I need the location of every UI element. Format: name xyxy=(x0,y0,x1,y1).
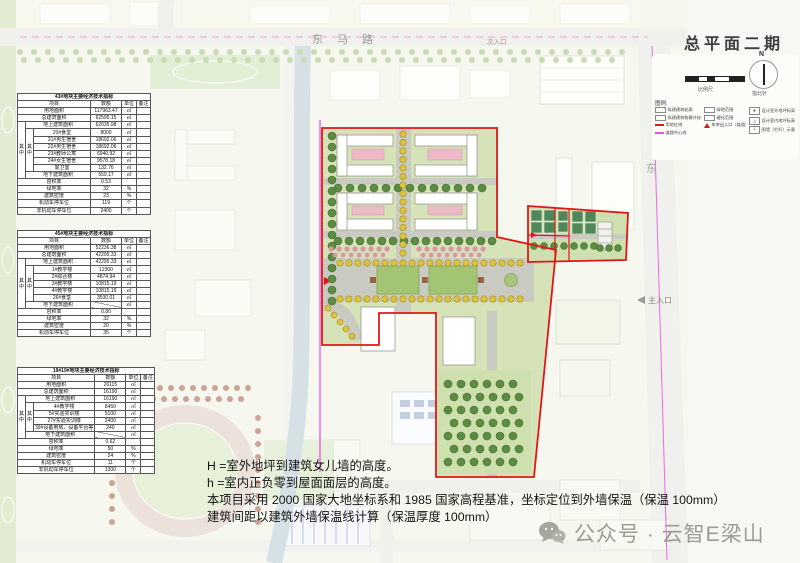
table-cell xyxy=(137,266,151,273)
sheet-title: 总平面二期 xyxy=(684,30,784,54)
watermark: 公众号 · 云智E梁山 xyxy=(538,518,765,548)
table-cell: ㎡ xyxy=(122,252,137,259)
table-cell: 8450 xyxy=(95,403,126,410)
table-cell xyxy=(137,323,151,330)
legend-list: 拟建建筑轮廓拟建建筑物最外轮廓用地红线道路中心线绿地范围硬化范围车库出入口（坡道… xyxy=(655,107,800,136)
indicator-table-19: 19#19#地块主要经济技术指标项目数额单位备注用地面积26115㎡总建筑面积1… xyxy=(17,367,155,474)
table-cell: 20#食堂 xyxy=(34,129,91,136)
table-cell: 43#地块主要经济技术指标 xyxy=(18,94,151,101)
table-cell: 个 xyxy=(126,460,141,467)
table-cell: 绿地率 xyxy=(18,446,95,453)
table-cell: 10815.19 xyxy=(91,280,122,287)
table-cell: 用地面积 xyxy=(18,245,91,252)
table-cell: 27#实验实训楼 xyxy=(34,417,95,424)
mark-swatch-icon: ┴ xyxy=(749,126,760,134)
table-cell: ㎡ xyxy=(122,273,137,280)
parcel-courts xyxy=(528,206,628,262)
table-cell: 其中 xyxy=(18,259,26,309)
table-cell: 2400 xyxy=(95,417,126,424)
table-cell: 23#教师公寓 xyxy=(34,150,91,157)
road-right-label: 东 xyxy=(646,160,657,176)
table-cell: 地上建筑面积 xyxy=(26,259,91,266)
table-cell: 16190 xyxy=(95,396,126,403)
table-cell: 26#食堂 xyxy=(34,294,91,301)
table-cell: ㎡ xyxy=(122,143,137,150)
table-cell: 42295.33 xyxy=(91,259,122,266)
table-cell: ㎡ xyxy=(122,157,137,164)
table-cell: 62595.15 xyxy=(91,115,122,122)
table-cell: % xyxy=(122,316,137,323)
scale-caption: 比例尺 xyxy=(698,86,713,93)
table-cell: 52236.38 xyxy=(91,245,122,252)
table-cell xyxy=(137,245,151,252)
table-cell: 24#女生宿舍 xyxy=(34,157,91,164)
table-cell: 42295.33 xyxy=(91,252,122,259)
table-cell: ㎡ xyxy=(122,108,137,115)
table-cell: 建筑密度 xyxy=(18,453,95,460)
table-cell xyxy=(137,330,151,337)
watermark-text: 公众号 · 云智E梁山 xyxy=(574,518,765,548)
table-cell: % xyxy=(126,446,141,453)
table-cell: 10815.19 xyxy=(91,287,122,294)
mark-swatch-icon: ▼ xyxy=(749,107,760,115)
table-cell: 1#教学楼 xyxy=(34,266,91,273)
table-cell xyxy=(137,136,151,143)
table-cell: 32 xyxy=(91,316,122,323)
table-cell xyxy=(141,396,155,403)
table-cell: 警卫室 xyxy=(34,164,91,171)
table-cell: ㎡ xyxy=(122,245,137,252)
table-cell: ㎡ xyxy=(122,287,137,294)
table-cell: ㎡ xyxy=(126,403,141,410)
table-cell: 单位 xyxy=(122,238,137,245)
indicator-table-43: 43#地块主要经济技术指标项目数额单位备注用地面积117963.47㎡总建筑面积… xyxy=(17,93,151,215)
table-cell: 其中 xyxy=(26,403,34,431)
legend-item: 拟建建筑物最外轮廓 xyxy=(655,115,701,121)
table-cell: ㎡ xyxy=(122,122,137,129)
table-cell: 117963.47 xyxy=(91,108,122,115)
table-cell: 用地面积 xyxy=(18,108,91,115)
table-cell: 39#设备用房、设备平台等 xyxy=(34,424,95,431)
table-cell: 备注 xyxy=(141,375,155,382)
table-cell: 个 xyxy=(122,207,137,214)
table-cell xyxy=(137,193,151,200)
table-cell: 132.76 xyxy=(91,164,122,171)
table-cell: 个 xyxy=(126,467,141,474)
table-cell: 119 xyxy=(91,200,122,207)
legend-item: 道路中心线 xyxy=(655,130,701,136)
table-cell xyxy=(141,424,155,431)
table-cell: ㎡ xyxy=(122,129,137,136)
table-cell: ㎡ xyxy=(122,164,137,171)
table-cell: 35 xyxy=(91,330,122,337)
legend-item: △设计室内地坪标高 xyxy=(749,117,800,125)
legend-label: 图例: xyxy=(655,99,668,107)
table-cell: ㎡ xyxy=(126,396,141,403)
table-cell xyxy=(91,301,122,308)
tri-swatch-icon xyxy=(704,123,710,128)
compass-north-letter: N xyxy=(759,51,764,58)
table-cell xyxy=(137,179,151,186)
table-cell: 2#综合楼 xyxy=(34,273,91,280)
table-cell: % xyxy=(122,323,137,330)
table-cell xyxy=(141,410,155,417)
table-cell: 地下建筑面积 xyxy=(26,431,95,438)
table-cell: 容积率 xyxy=(18,179,91,186)
table-cell: 559.17 xyxy=(91,172,122,179)
note-line: h =室内正负零到屋面面层的高度。 xyxy=(207,475,799,492)
table-cell: 机动车停车位 xyxy=(18,330,91,337)
table-cell: 绿地率 xyxy=(18,316,91,323)
table-cell xyxy=(137,259,151,266)
table-cell xyxy=(137,287,151,294)
table-cell: 4874.94 xyxy=(91,273,122,280)
table-cell: 5#实验实训楼 xyxy=(34,410,95,417)
table-cell: 地下建筑面积 xyxy=(26,301,91,308)
table-cell: 0.80 xyxy=(91,309,122,316)
table-cell: 18692.06 xyxy=(91,136,122,143)
table-cell: 项目 xyxy=(18,238,91,245)
table-cell: 项目 xyxy=(18,375,95,382)
table-cell: 4#教学楼 xyxy=(34,403,95,410)
table-cell: 单位 xyxy=(126,375,141,382)
table-cell: 240 xyxy=(95,424,126,431)
table-cell: % xyxy=(126,453,141,460)
table-cell xyxy=(137,115,151,122)
table-cell: 19#19#地块主要经济技术指标 xyxy=(18,368,155,375)
table-cell: 3#教学楼 xyxy=(34,280,91,287)
table-cell: % xyxy=(122,186,137,193)
table-cell xyxy=(137,172,151,179)
table-cell xyxy=(137,108,151,115)
table-cell: 数额 xyxy=(91,238,122,245)
table-cell xyxy=(141,403,155,410)
box-swatch-icon xyxy=(655,115,666,121)
north-compass-icon xyxy=(749,60,778,89)
table-cell xyxy=(137,294,151,301)
table-cell xyxy=(137,280,151,287)
table-cell: 绿地率 xyxy=(18,186,91,193)
legend-item: ┴围墙（栏杆）示意 xyxy=(749,126,800,134)
table-cell: 用地面积 xyxy=(18,382,95,389)
table-cell: 总建筑面积 xyxy=(18,252,91,259)
table-cell: ㎡ xyxy=(122,136,137,143)
table-cell: 其中 xyxy=(18,122,26,179)
table-cell: 0.62 xyxy=(95,438,126,445)
table-cell: ㎡ xyxy=(122,301,137,308)
line-magenta-swatch-icon xyxy=(655,132,664,134)
table-cell: 项目 xyxy=(18,101,91,108)
table-cell: 容积率 xyxy=(18,438,95,445)
legend-item: ▼设计室外地坪标高 xyxy=(749,107,800,115)
table-cell: 6940.92 xyxy=(91,150,122,157)
note-line: H =室外地坪到建筑女儿墙的高度。 xyxy=(207,458,799,475)
table-cell: 地上建筑面积 xyxy=(26,122,91,129)
table-cell: 3530.01 xyxy=(91,294,122,301)
table-cell: 总建筑面积 xyxy=(18,389,95,396)
table-cell xyxy=(122,309,137,316)
table-cell xyxy=(137,207,151,214)
table-cell: 建筑密度 xyxy=(18,193,91,200)
table-cell xyxy=(137,186,151,193)
table-cell: ㎡ xyxy=(122,294,137,301)
table-cell xyxy=(95,431,126,438)
table-cell: % xyxy=(122,193,137,200)
mark-swatch-icon: △ xyxy=(749,117,760,125)
table-cell: 11 xyxy=(95,460,126,467)
note-line: 本项目采用 2000 国家大地坐标系和 1985 国家高程基准，坐标定位到外墙保… xyxy=(207,492,799,509)
table-cell: 1300 xyxy=(95,467,126,474)
table-cell: 24 xyxy=(95,453,126,460)
table-cell xyxy=(137,316,151,323)
table-cell: ㎡ xyxy=(126,410,141,417)
table-cell: 其中 xyxy=(26,129,34,172)
table-cell: 4#教学楼 xyxy=(34,287,91,294)
table-cell: ㎡ xyxy=(126,417,141,424)
table-cell: 地上建筑面积 xyxy=(26,396,95,403)
table-cell: 数额 xyxy=(95,375,126,382)
table-cell: 其中 xyxy=(18,396,26,439)
table-cell xyxy=(137,273,151,280)
table-cell: 其中 xyxy=(26,266,34,301)
indicator-table-45: 45#地块主要经济技术指标项目数额单位备注用地面积52236.38㎡总建筑面积4… xyxy=(17,230,151,337)
table-cell xyxy=(137,252,151,259)
legend-item: 硬化范围 xyxy=(704,115,746,121)
table-cell: 机动车停车位 xyxy=(18,460,95,467)
table-cell: 45#地块主要经济技术指标 xyxy=(18,231,151,238)
table-cell: 数额 xyxy=(91,101,122,108)
box-swatch-icon xyxy=(704,115,715,121)
table-cell xyxy=(137,157,151,164)
table-cell: 非机动车停车位 xyxy=(18,467,95,474)
table-cell: 个 xyxy=(122,330,137,337)
table-cell: 机动车停车位 xyxy=(18,200,91,207)
table-cell: ㎡ xyxy=(122,266,137,273)
table-cell: 地下建筑面积 xyxy=(26,172,91,179)
table-cell: 容积率 xyxy=(18,309,91,316)
table-cell xyxy=(137,164,151,171)
table-cell xyxy=(141,446,155,453)
table-cell: ㎡ xyxy=(122,150,137,157)
table-cell: ㎡ xyxy=(126,431,141,438)
table-cell xyxy=(141,431,155,438)
table-cell xyxy=(122,179,137,186)
table-cell xyxy=(137,150,151,157)
table-cell xyxy=(141,453,155,460)
basketball-courts xyxy=(531,210,596,234)
scale-bar xyxy=(685,76,745,82)
table-cell: 20 xyxy=(91,323,122,330)
table-cell: 2400 xyxy=(91,207,122,214)
table-cell: 备注 xyxy=(137,101,151,108)
table-cell: 0.53 xyxy=(91,179,122,186)
wechat-icon xyxy=(538,521,566,545)
table-cell: ㎡ xyxy=(122,280,137,287)
table-cell: 22#男生宿舍 xyxy=(34,143,91,150)
table-cell: 建筑密度 xyxy=(18,323,91,330)
table-cell xyxy=(137,200,151,207)
table-cell xyxy=(137,122,151,129)
table-cell: 32 xyxy=(91,186,122,193)
table-cell: 26115 xyxy=(95,382,126,389)
table-cell xyxy=(141,389,155,396)
line-red-swatch-icon xyxy=(655,124,664,126)
secondary-entrance-label: 次入口 xyxy=(487,36,507,46)
table-cell: 8000 xyxy=(91,129,122,136)
box-swatch-icon xyxy=(704,107,715,113)
table-cell: 21#男生宿舍 xyxy=(34,136,91,143)
table-cell: ㎡ xyxy=(126,424,141,431)
table-cell: 非机动车停车位 xyxy=(18,207,91,214)
table-cell: 单位 xyxy=(122,101,137,108)
table-cell xyxy=(137,129,151,136)
box-swatch-icon xyxy=(655,107,666,113)
table-cell: 16190 xyxy=(95,389,126,396)
table-cell xyxy=(141,467,155,474)
table-cell: ㎡ xyxy=(126,389,141,396)
legend-item: 拟建建筑轮廓 xyxy=(655,107,701,113)
table-cell: 62035.98 xyxy=(91,122,122,129)
table-cell xyxy=(137,143,151,150)
general-notes: H =室外地坪到建筑女儿墙的高度。h =室内正负零到屋面面层的高度。本项目采用 … xyxy=(207,458,799,526)
table-cell: 5100 xyxy=(95,410,126,417)
table-cell: ㎡ xyxy=(122,115,137,122)
table-cell: 50 xyxy=(95,446,126,453)
table-cell xyxy=(141,417,155,424)
table-cell: 23 xyxy=(91,193,122,200)
table-cell: 备注 xyxy=(137,238,151,245)
compass-caption: 指北针 xyxy=(752,90,767,97)
legend-item: 用地红线 xyxy=(655,122,701,128)
table-cell xyxy=(141,438,155,445)
main-entrance-label: 主入口 xyxy=(648,295,672,306)
table-cell: 9578.18 xyxy=(91,157,122,164)
legend-item: 绿地范围 xyxy=(704,107,746,113)
table-cell: 18692.06 xyxy=(91,143,122,150)
table-cell xyxy=(137,309,151,316)
road-top-label: 东马路 xyxy=(312,31,387,47)
table-cell xyxy=(141,382,155,389)
table-cell xyxy=(126,438,141,445)
main-entrance-arrow-icon xyxy=(637,296,645,304)
legend-item: 车库出入口（坡道） xyxy=(704,122,746,128)
table-cell: ㎡ xyxy=(122,259,137,266)
table-cell: ㎡ xyxy=(126,382,141,389)
table-cell: 个 xyxy=(122,200,137,207)
table-cell: 总建筑面积 xyxy=(18,115,91,122)
table-cell: ㎡ xyxy=(122,172,137,179)
table-cell xyxy=(141,460,155,467)
table-cell: 12300 xyxy=(91,266,122,273)
table-cell xyxy=(137,301,151,308)
